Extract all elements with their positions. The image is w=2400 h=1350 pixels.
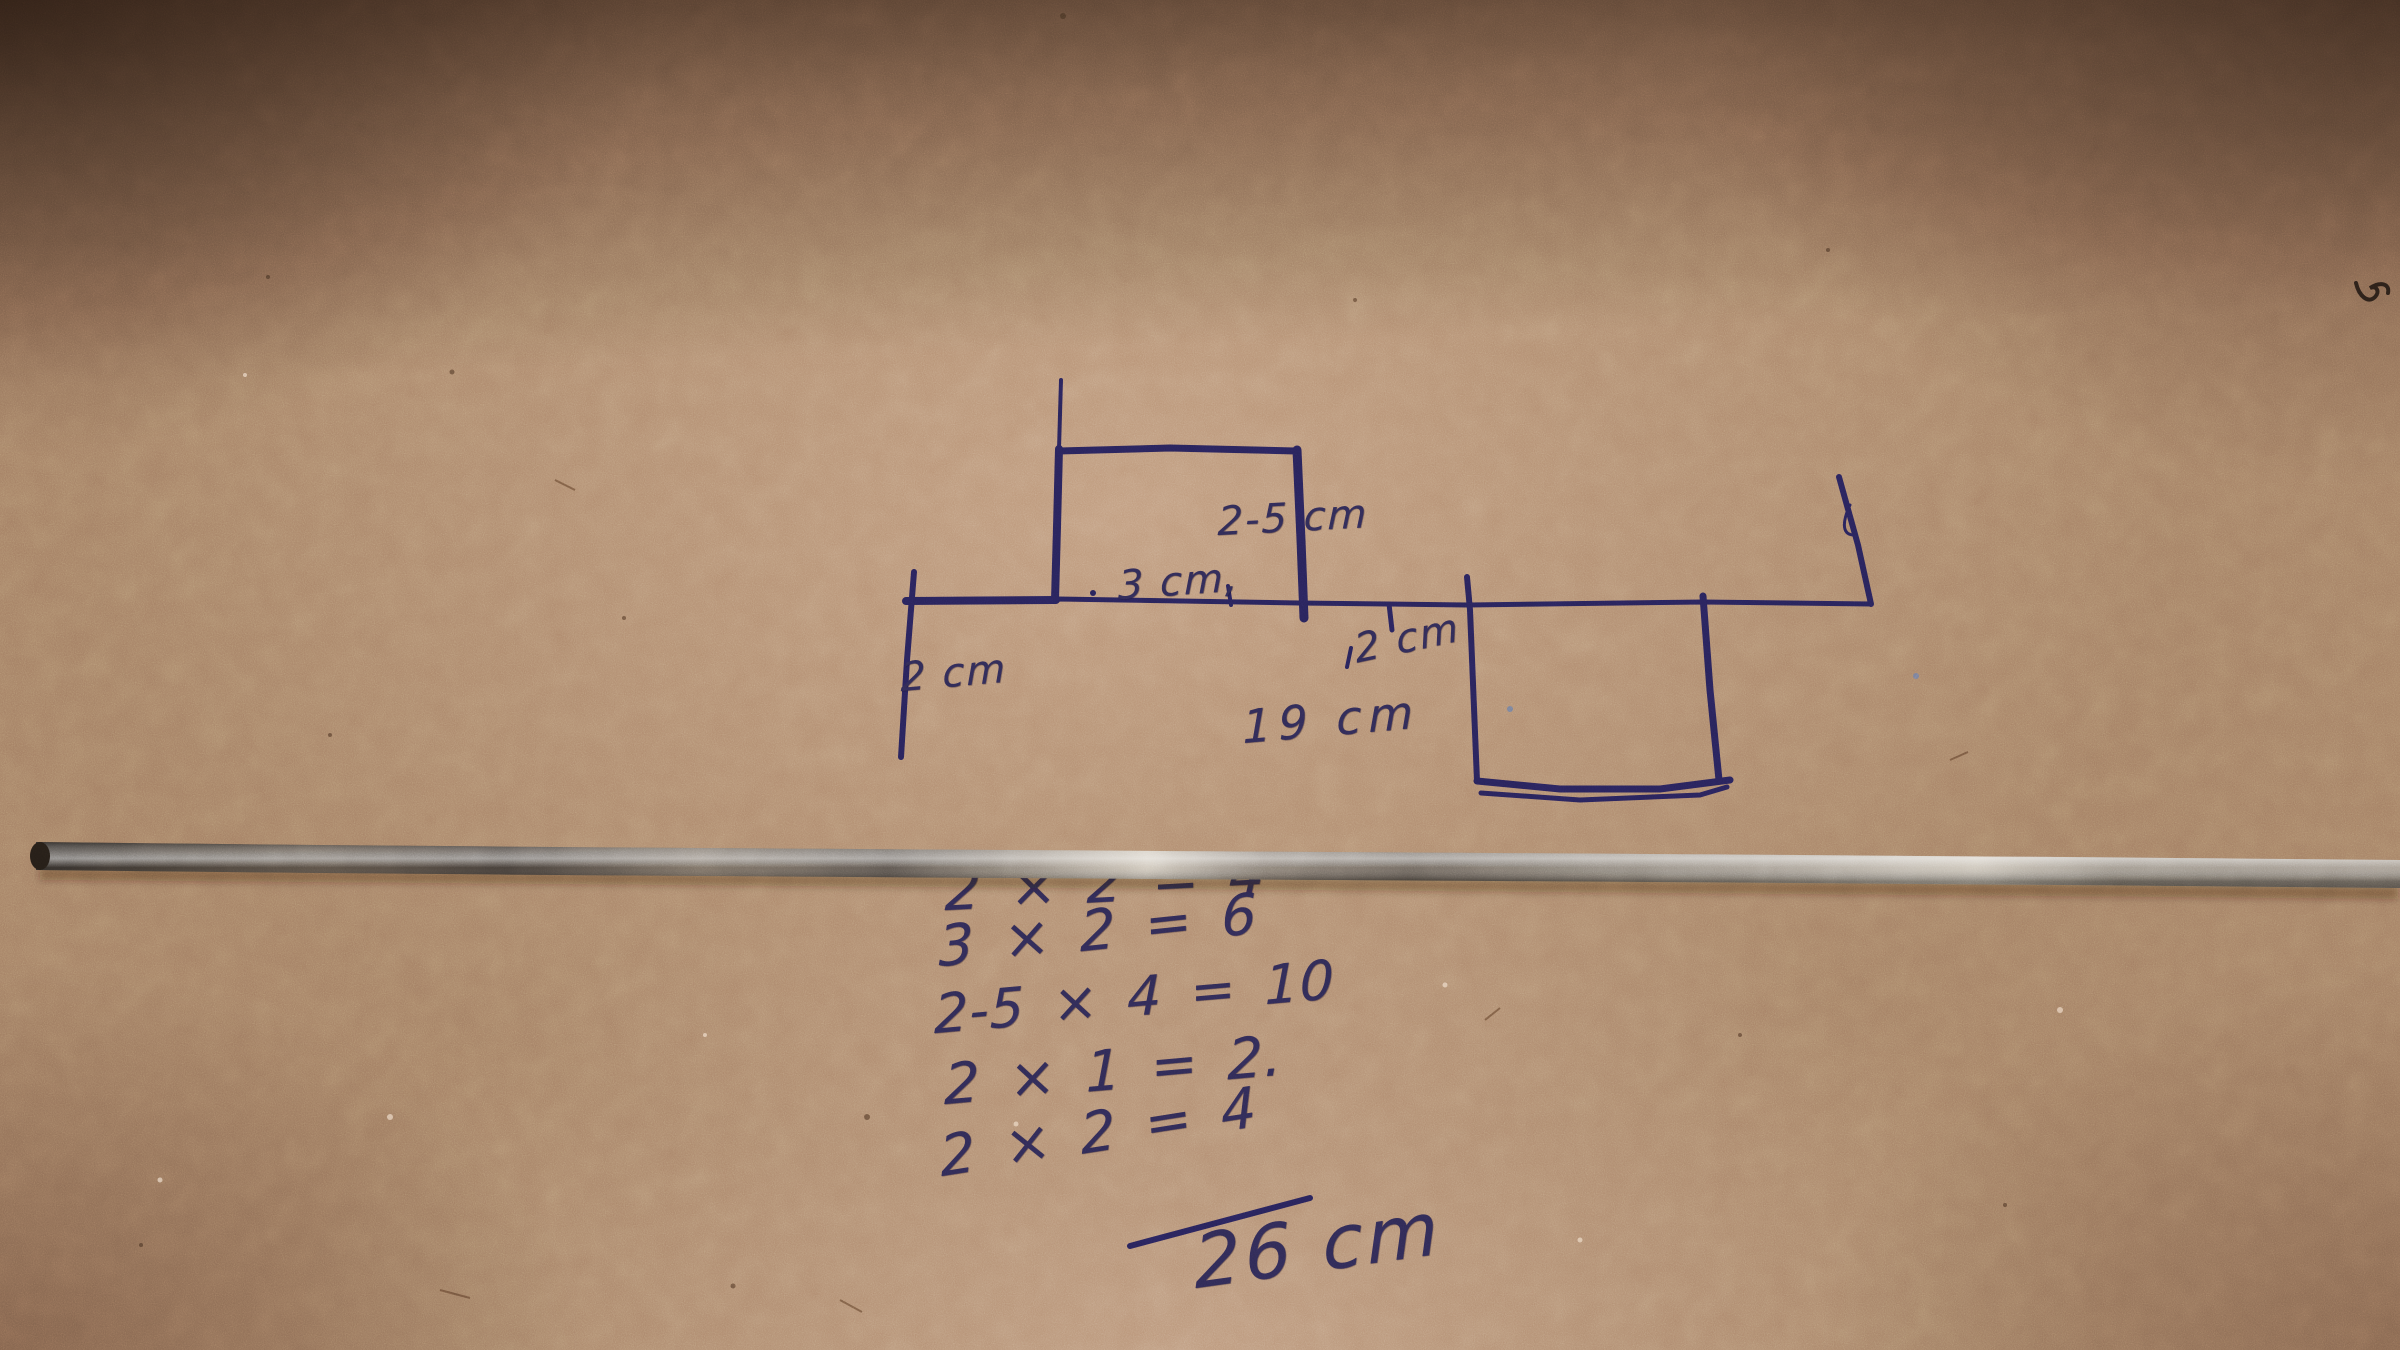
rod-left-end (30, 842, 50, 870)
cardboard-photo: 2 cm 3 cm, 2-5 cm 2 cm 19 cm 2 × 2 = 4 3… (0, 0, 2400, 1350)
metal-rod (0, 0, 2400, 1350)
